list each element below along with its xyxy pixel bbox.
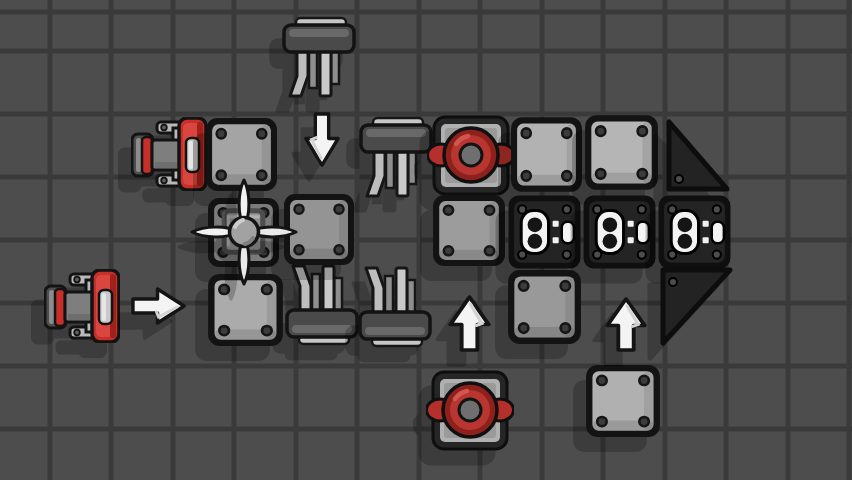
thrust-arrow-right[interactable] — [130, 286, 187, 326]
thrust-arrow-down[interactable] — [303, 111, 341, 168]
strut-block-4[interactable] — [358, 264, 433, 348]
metal-plate-2[interactable] — [509, 115, 584, 194]
connector-block-1[interactable] — [507, 194, 582, 270]
propeller-blades[interactable] — [188, 176, 300, 288]
game-board — [0, 0, 852, 480]
connector-block-2[interactable] — [582, 194, 657, 270]
wedge-block-2[interactable] — [659, 266, 734, 347]
fan-block-2[interactable] — [426, 369, 514, 452]
thrust-arrow-up-2[interactable] — [604, 296, 648, 353]
wedge-block-1[interactable] — [664, 119, 731, 192]
strut-block-1[interactable] — [282, 16, 357, 100]
connector-block-3[interactable] — [657, 194, 732, 270]
metal-plate-5[interactable] — [431, 193, 507, 268]
fan-block-1[interactable] — [427, 114, 515, 197]
pilot-seat-block[interactable] — [356, 192, 439, 268]
thrust-arrow-up-1[interactable] — [447, 294, 492, 353]
strut-block-2[interactable] — [359, 116, 434, 200]
metal-plate-3[interactable] — [583, 113, 660, 192]
metal-plate-8[interactable] — [584, 363, 662, 439]
metal-plate-7[interactable] — [506, 268, 583, 346]
engine-block-2[interactable] — [44, 269, 120, 343]
